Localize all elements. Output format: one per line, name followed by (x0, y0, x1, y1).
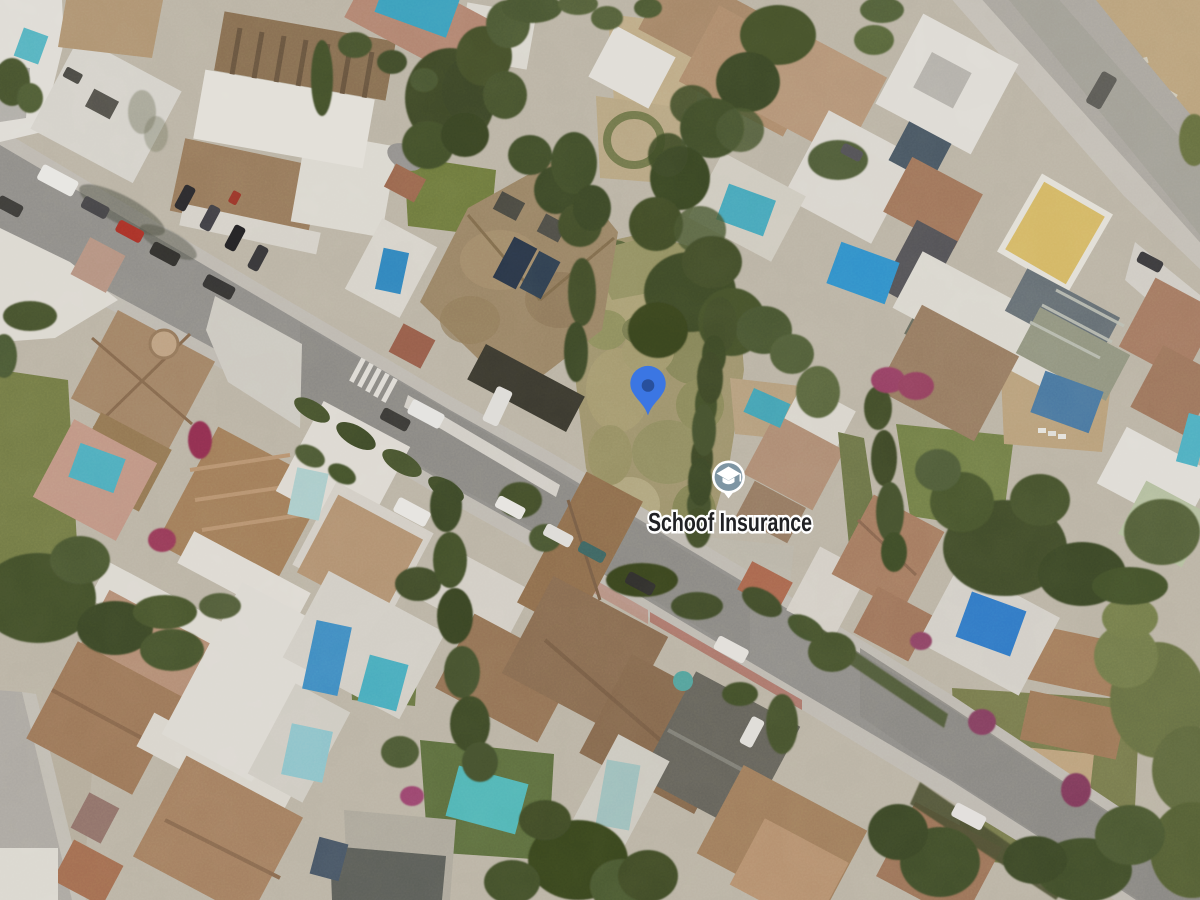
svg-text:Schoof Insurance: Schoof Insurance (648, 507, 812, 537)
